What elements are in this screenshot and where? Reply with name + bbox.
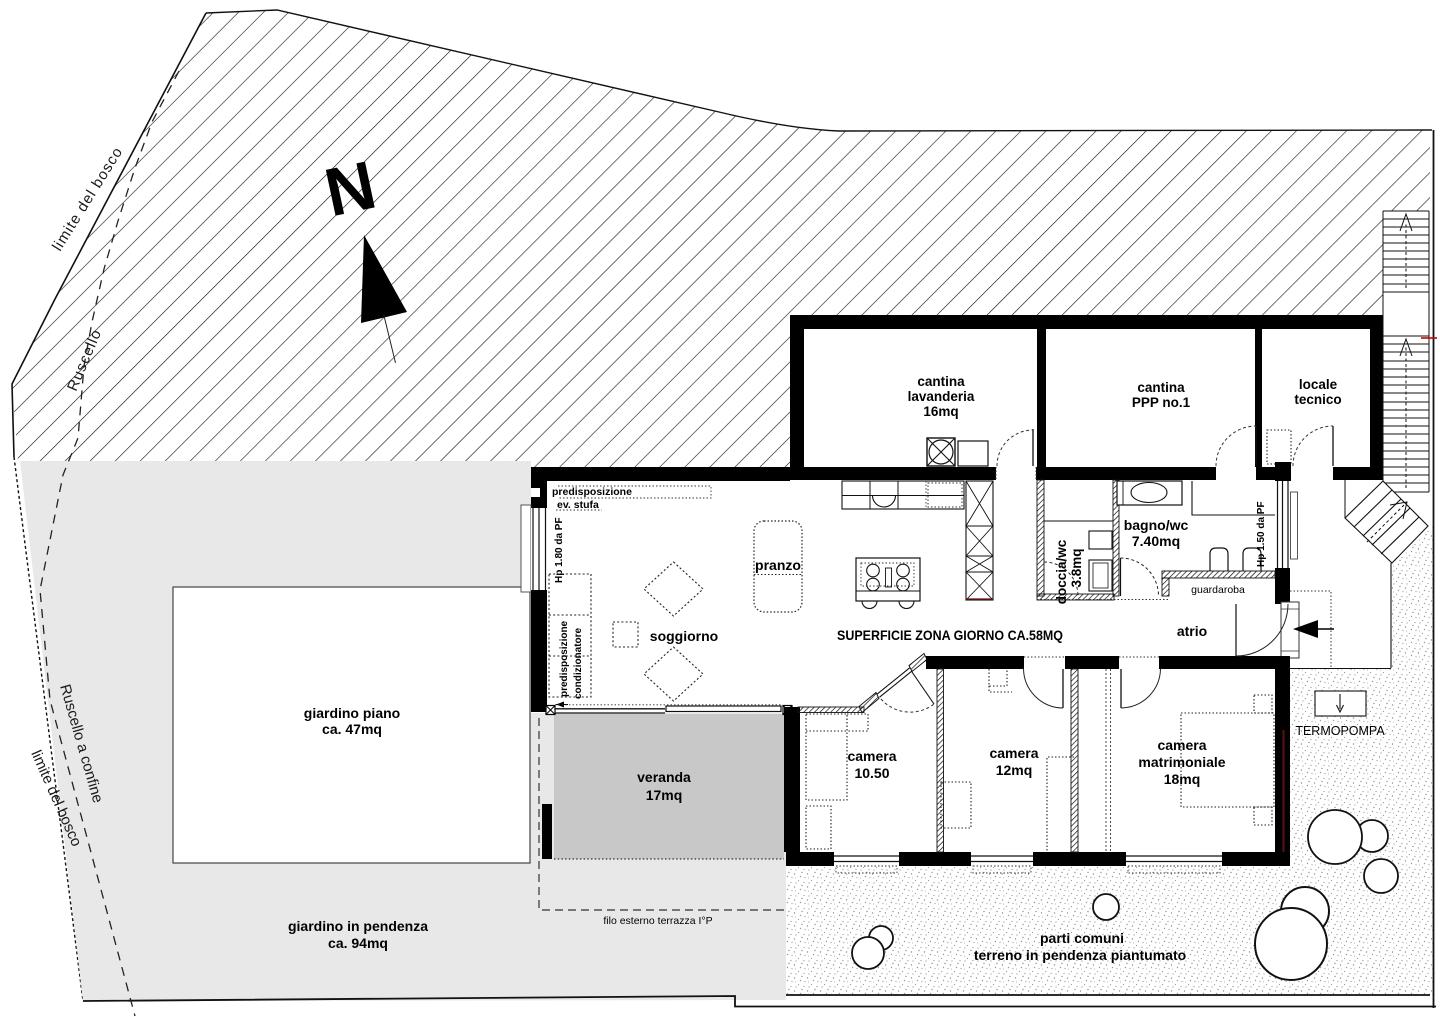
svg-text:TERMOPOMPA: TERMOPOMPA [1295, 724, 1385, 738]
svg-text:SUPERFICIE ZONA GIORNO CA.58MQ: SUPERFICIE ZONA GIORNO CA.58MQ [837, 627, 1063, 643]
svg-text:giardino piano: giardino piano [304, 705, 400, 721]
svg-text:atrio: atrio [1177, 623, 1207, 639]
svg-text:filo esterno terrazza I°P: filo esterno terrazza I°P [603, 915, 712, 927]
svg-text:parti comuni: parti comuni [1040, 930, 1124, 946]
svg-text:terreno in pendenza piantumato: terreno in pendenza piantumato [974, 947, 1186, 963]
svg-text:PPP no.1: PPP no.1 [1132, 395, 1191, 410]
svg-text:camera: camera [1157, 737, 1206, 753]
svg-text:locale: locale [1299, 377, 1338, 392]
svg-text:Hp 1.80 da PF: Hp 1.80 da PF [554, 517, 565, 583]
svg-text:pranzo: pranzo [755, 557, 801, 573]
svg-text:tecnico: tecnico [1294, 392, 1341, 407]
svg-text:18mq: 18mq [1164, 771, 1201, 787]
svg-text:giardino in pendenza: giardino in pendenza [288, 918, 428, 934]
svg-text:bagno/wc: bagno/wc [1124, 517, 1189, 533]
svg-text:12mq: 12mq [996, 762, 1033, 778]
svg-text:condizionatore: condizionatore [573, 627, 584, 699]
svg-text:cantina: cantina [1137, 380, 1185, 395]
svg-text:predisposizione: predisposizione [559, 620, 570, 697]
svg-text:camera: camera [847, 748, 896, 764]
svg-text:16mq: 16mq [923, 404, 958, 419]
svg-text:ca. 47mq: ca. 47mq [322, 721, 382, 737]
svg-text:matrimoniale: matrimoniale [1138, 754, 1225, 770]
svg-text:17mq: 17mq [646, 787, 683, 803]
svg-text:cantina: cantina [917, 374, 965, 389]
svg-text:ev. stufa: ev. stufa [557, 499, 599, 511]
svg-text:soggiorno: soggiorno [650, 628, 718, 644]
svg-text:camera: camera [989, 745, 1038, 761]
svg-text:ca. 94mq: ca. 94mq [328, 935, 388, 951]
svg-text:predisposizione: predisposizione [552, 486, 632, 498]
svg-text:lavanderia: lavanderia [908, 389, 975, 404]
svg-text:10.50: 10.50 [854, 765, 889, 781]
svg-text:Hp 1.50 da PF: Hp 1.50 da PF [1256, 501, 1267, 567]
svg-text:doccia/wc: doccia/wc [1054, 539, 1069, 604]
svg-text:guardaroba: guardaroba [1191, 584, 1245, 596]
svg-text:7.40mq: 7.40mq [1132, 533, 1180, 549]
svg-text:veranda: veranda [637, 769, 691, 785]
svg-text:3.8mq: 3.8mq [1069, 548, 1084, 587]
